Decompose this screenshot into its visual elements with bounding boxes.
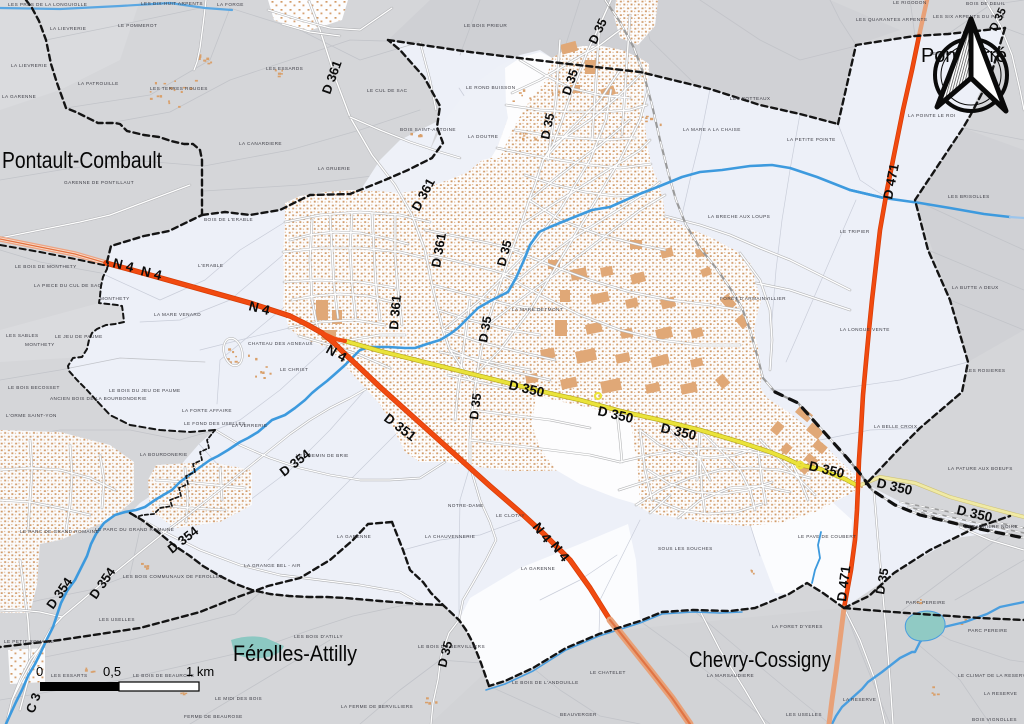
svg-text:LA VERRERIE: LA VERRERIE [232,423,267,428]
svg-text:FORET D'ARMAINVILLIER: FORET D'ARMAINVILLIER [720,296,786,301]
svg-text:LA FORGE: LA FORGE [217,2,244,7]
svg-text:SOUS LES SOUCHES: SOUS LES SOUCHES [658,546,713,551]
svg-text:LE CHATELET: LE CHATELET [590,670,626,675]
svg-text:LA LIEVRERIE: LA LIEVRERIE [11,63,47,68]
svg-text:LA BARRIERE NOIRE: LA BARRIERE NOIRE [964,524,1018,529]
svg-text:LES SABLES: LES SABLES [6,333,39,338]
svg-text:LE PARC DE GRAND ROMAINE: LE PARC DE GRAND ROMAINE [20,529,99,534]
svg-text:LA RESERVE: LA RESERVE [984,691,1017,696]
svg-text:LA POINTE LE ROI: LA POINTE LE ROI [908,113,956,118]
svg-text:LA LIEVRERIE: LA LIEVRERIE [50,26,86,31]
svg-text:FERME DE BEAUROSE: FERME DE BEAUROSE [184,714,243,719]
svg-text:PARC PEREIRE: PARC PEREIRE [906,600,946,605]
svg-text:PARC PEREIRE: PARC PEREIRE [968,628,1008,633]
svg-text:LE BOIS DU JEU DE PAUME: LE BOIS DU JEU DE PAUME [109,388,181,393]
svg-text:BOIS VIGNOLLES: BOIS VIGNOLLES [972,717,1017,722]
svg-text:LE CUL DE SAC: LE CUL DE SAC [367,88,408,93]
svg-text:LE PAVE DE COUBERT: LE PAVE DE COUBERT [798,534,856,539]
svg-text:LE JEU DE PAUME: LE JEU DE PAUME [55,334,103,339]
svg-text:LES BOIS COMMUNAUX DE FEROLLES: LES BOIS COMMUNAUX DE FEROLLES [123,574,223,579]
svg-text:LE POMMEROT: LE POMMEROT [118,23,157,28]
svg-text:Férolles-Attilly: Férolles-Attilly [233,641,357,666]
svg-text:GARENNE DE PONTILLAUT: GARENNE DE PONTILLAUT [64,180,134,185]
svg-text:LA RESERVE: LA RESERVE [843,697,876,702]
svg-text:LA DOUTRE: LA DOUTRE [468,134,498,139]
svg-text:LE TRIPIER: LE TRIPIER [840,229,870,234]
svg-text:CHATEAU DES AGNEAUX: CHATEAU DES AGNEAUX [248,341,313,346]
svg-text:LE BOIS PRIEUR: LE BOIS PRIEUR [464,23,507,28]
svg-text:LA MARE DETMONT: LA MARE DETMONT [512,307,563,312]
svg-text:LA GARENNE: LA GARENNE [337,534,371,539]
svg-text:LE PETIT ROMAINE: LE PETIT ROMAINE [4,639,54,644]
svg-text:LA FORET D'YERES: LA FORET D'YERES [772,624,823,629]
svg-text:LES BRISOLLES: LES BRISOLLES [948,194,990,199]
svg-text:LE RIGODON: LE RIGODON [893,0,927,5]
svg-text:LES BOTTEAUX: LES BOTTEAUX [730,96,771,101]
svg-text:LES PRES DE LA LONGUIOLLE: LES PRES DE LA LONGUIOLLE [8,2,87,7]
svg-text:LA MARSAUDIERE: LA MARSAUDIERE [707,673,754,678]
svg-text:BOIS DE L'ERABLE: BOIS DE L'ERABLE [204,217,253,222]
svg-text:LA BELLE CROIX: LA BELLE CROIX [874,424,918,429]
svg-text:0: 0 [36,664,43,679]
svg-text:LES DIX-HUIT ARPENTS: LES DIX-HUIT ARPENTS [141,1,203,6]
svg-text:LA FERME DE BERVILLIERS: LA FERME DE BERVILLIERS [341,704,413,709]
svg-text:MONTHETY: MONTHETY [25,342,55,347]
svg-text:LE PARC DU GRAND ROMAINE: LE PARC DU GRAND ROMAINE [95,527,174,532]
svg-text:NOTRE-DAME: NOTRE-DAME [448,503,484,508]
svg-text:LA PATURE AUX BOEUFS: LA PATURE AUX BOEUFS [948,466,1013,471]
svg-text:LE BOIS DE MONTHETY: LE BOIS DE MONTHETY [15,264,77,269]
svg-text:Chevry-Cossigny: Chevry-Cossigny [689,647,831,672]
svg-text:LES ROSIERES: LES ROSIERES [966,368,1005,373]
svg-text:LE BOIS DE L'ANDOUILLE: LE BOIS DE L'ANDOUILLE [512,680,579,685]
svg-text:MONTHETY: MONTHETY [100,296,130,301]
svg-text:LA GRANGE BEL - AIR: LA GRANGE BEL - AIR [244,563,301,568]
svg-text:BOIS DE DEUIL: BOIS DE DEUIL [966,1,1006,6]
svg-text:L'ORME SAINT-YON: L'ORME SAINT-YON [6,413,57,418]
svg-text:LES TERRES ROUGES: LES TERRES ROUGES [150,86,208,91]
svg-text:LA PIECE DU CUL DE SAC: LA PIECE DU CUL DE SAC [34,283,102,288]
svg-text:LA GARENNE: LA GARENNE [521,566,555,571]
svg-text:LA PETITE POINTE: LA PETITE POINTE [787,137,836,142]
svg-text:LA CANARDIERE: LA CANARDIERE [239,141,282,146]
svg-text:LE CHRIST: LE CHRIST [280,367,308,372]
svg-text:LE MIDI DES BOIS: LE MIDI DES BOIS [215,696,262,701]
svg-text:LES BOIS D'ATILLY: LES BOIS D'ATILLY [294,634,343,639]
svg-text:LA PATROUILLE: LA PATROUILLE [78,81,119,86]
svg-text:LA CHAUVENNERIE: LA CHAUVENNERIE [425,534,475,539]
svg-text:LES USELLES: LES USELLES [786,712,822,717]
svg-text:0,5: 0,5 [103,664,121,679]
svg-text:LA BOURDONERIE: LA BOURDONERIE [140,452,188,457]
svg-text:LES USELLES: LES USELLES [99,617,135,622]
svg-text:Pontault-Combault: Pontault-Combault [2,147,163,173]
svg-text:ANCIEN BOIS DE LA BOURBONDERIE: ANCIEN BOIS DE LA BOURBONDERIE [50,396,147,401]
svg-text:LA BRECHE AUX LOUPS: LA BRECHE AUX LOUPS [708,214,770,219]
svg-text:LE CLIMAT DE LA RESERVE: LE CLIMAT DE LA RESERVE [958,673,1024,678]
svg-text:LE BOIS BECOSSET: LE BOIS BECOSSET [8,385,60,390]
svg-text:L'ERABLE: L'ERABLE [198,263,223,268]
svg-text:BEAUVERGER: BEAUVERGER [560,712,597,717]
svg-text:LA MARE A LA CHAISE: LA MARE A LA CHAISE [683,127,741,132]
svg-text:LA BUTTE A DEUX: LA BUTTE A DEUX [952,285,999,290]
svg-text:LA FORTE AFFAIRE: LA FORTE AFFAIRE [182,408,232,413]
svg-text:BOIS SAINT-ANTOINE: BOIS SAINT-ANTOINE [400,127,456,132]
svg-text:1 km: 1 km [186,664,214,679]
svg-text:LE CLOTAY: LE CLOTAY [496,513,525,518]
svg-text:LES ESSARDS: LES ESSARDS [266,66,303,71]
svg-text:LES ESSARTS: LES ESSARTS [51,673,88,678]
svg-text:LES QUARANTES ARPENTS: LES QUARANTES ARPENTS [856,17,927,22]
svg-text:LA GRUERIE: LA GRUERIE [318,166,350,171]
svg-text:LE ROND BUISSON: LE ROND BUISSON [466,85,516,90]
svg-text:LA LONGUE VENTE: LA LONGUE VENTE [840,327,890,332]
svg-text:D 361: D 361 [386,294,404,330]
svg-text:LA GARENNE: LA GARENNE [2,94,36,99]
svg-text:LA MARE VENARD: LA MARE VENARD [154,312,201,317]
